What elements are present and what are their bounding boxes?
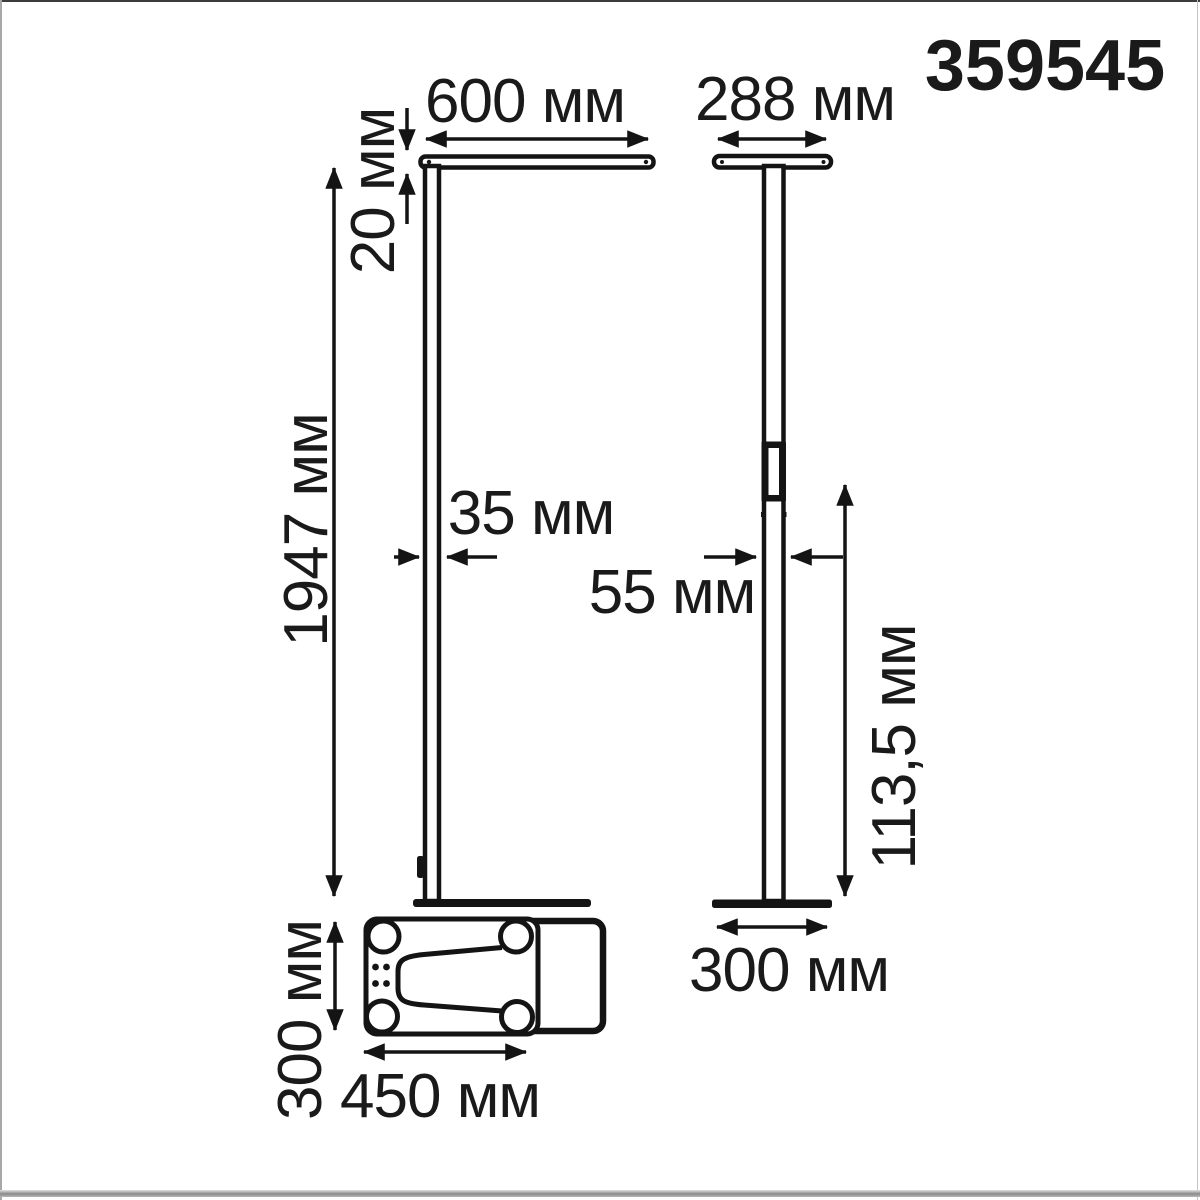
dim-label-head-depth-288: 288 мм xyxy=(695,69,895,131)
dim-label-height-1947: 1947 мм xyxy=(276,413,338,646)
page-edge-top xyxy=(0,0,1200,2)
base-top-view xyxy=(366,919,603,1034)
base-screw-dot xyxy=(372,964,379,971)
product-number: 359545 xyxy=(925,30,1165,102)
base-wheel-top-left xyxy=(368,921,399,952)
dim-label-pole-width-35: 35 мм xyxy=(448,483,614,545)
dim-label-switch-height-113-5: 113,5 мм xyxy=(864,624,926,869)
base-wheel-bottom-left xyxy=(367,1001,398,1032)
base-screw-dot xyxy=(383,980,390,987)
side-pole-joint-tick xyxy=(761,512,765,517)
side-pole-joint-tick xyxy=(783,512,787,517)
front-base-plate xyxy=(413,899,591,907)
front-pole xyxy=(425,166,439,901)
dim-label-pole-depth-55: 55 мм xyxy=(589,562,755,624)
side-base-plate xyxy=(712,900,832,909)
side-head-end-dot-right xyxy=(822,160,826,164)
dim-label-base-length-450: 450 мм xyxy=(340,1066,540,1128)
dim-label-base-depth-300: 300 мм xyxy=(270,920,332,1120)
dim-label-head-thickness-20: 20 мм xyxy=(343,108,405,274)
front-head-end-dot-left xyxy=(427,160,431,164)
page-bottom-border xyxy=(0,1190,1200,1197)
side-pole xyxy=(764,166,784,901)
page-edge-right xyxy=(1197,0,1199,1200)
front-pole-foot-nub xyxy=(417,856,424,878)
dim-label-head-width-600: 600 мм xyxy=(425,71,625,133)
base-wheel-bottom-right xyxy=(502,1002,533,1033)
side-pole-switch-slot xyxy=(769,448,780,495)
front-head-end-dot-right xyxy=(644,160,648,164)
dim-label-side-base-width-300: 300 мм xyxy=(689,940,889,1002)
front-head-bar xyxy=(421,157,654,168)
base-screw-dot xyxy=(383,964,390,971)
side-head-end-dot-left xyxy=(720,160,724,164)
base-wheel-top-right xyxy=(501,921,532,952)
dimension-diagram: 359545 600 мм 288 мм 20 мм 1947 мм 35 мм… xyxy=(0,0,1200,1200)
base-screw-dot xyxy=(372,980,379,987)
side-view xyxy=(712,156,832,908)
page-edge-left xyxy=(0,0,2,1200)
